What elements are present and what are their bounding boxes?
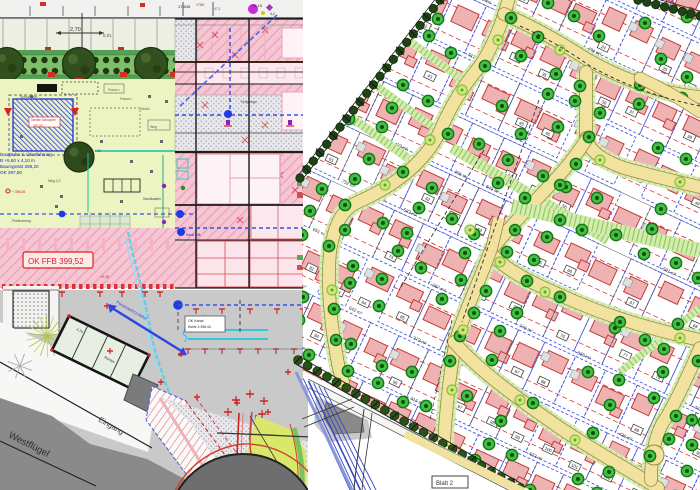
svg-text:1:50: 1:50 bbox=[95, 149, 101, 153]
svg-text:B +5,60 x 4,10 m: B +5,60 x 4,10 m bbox=[0, 158, 35, 163]
svg-text:397,60: 397,60 bbox=[33, 124, 43, 128]
svg-text:Geräte Schuppen: Geräte Schuppen bbox=[31, 118, 56, 122]
svg-text:47,1: 47,1 bbox=[214, 7, 221, 11]
svg-text:OK FFB 399,52: OK FFB 399,52 bbox=[28, 257, 84, 266]
svg-text:Rasen: Rasen bbox=[120, 96, 132, 101]
svg-text:Hecke: Hecke bbox=[140, 107, 150, 111]
svg-text:Weg: Weg bbox=[150, 125, 157, 129]
svg-text:2,70: 2,70 bbox=[70, 27, 81, 33]
svg-text:Sohle 1:396,44: Sohle 1:396,44 bbox=[188, 325, 211, 329]
svg-text:Blatt 2: Blatt 2 bbox=[436, 481, 454, 487]
svg-text:OK 397,50: OK 397,50 bbox=[0, 170, 22, 175]
svg-text:+5,10: +5,10 bbox=[252, 3, 263, 8]
svg-text:Baumgeäst 398,20: Baumgeäst 398,20 bbox=[0, 164, 39, 169]
svg-text:Sandkasten: Sandkasten bbox=[143, 197, 161, 201]
svg-text:Kanal 398: Kanal 398 bbox=[186, 233, 201, 237]
svg-text:Plattenbelag: Plattenbelag bbox=[12, 219, 31, 223]
svg-text:Spielwiese: Spielwiese bbox=[20, 95, 37, 99]
svg-text:OK Kanal: OK Kanal bbox=[188, 319, 204, 323]
svg-text:4,2: 4,2 bbox=[270, 12, 275, 16]
svg-text:1784: 1784 bbox=[196, 3, 204, 7]
svg-text:Weg 2,0: Weg 2,0 bbox=[48, 179, 61, 183]
svg-text:6,01: 6,01 bbox=[103, 33, 112, 38]
svg-text:+ 398,26: + 398,26 bbox=[12, 190, 25, 194]
svg-text:Baugrube 2. Überfahrung: Baugrube 2. Überfahrung bbox=[0, 151, 52, 157]
svg-text:Rasen: Rasen bbox=[108, 87, 120, 92]
svg-text:17,845: 17,845 bbox=[178, 4, 191, 9]
svg-text:+0,35: +0,35 bbox=[100, 275, 109, 279]
